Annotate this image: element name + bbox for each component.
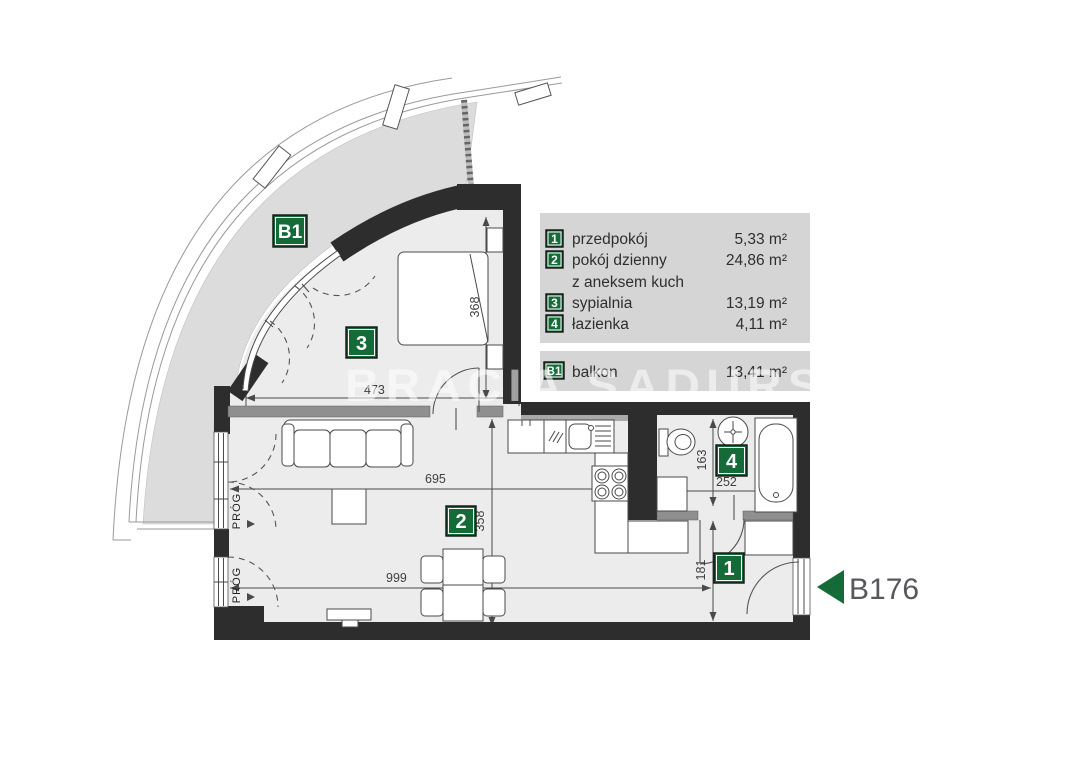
badge-bathroom: 4 bbox=[716, 445, 747, 476]
dim-living-width-lower: 999 bbox=[386, 571, 407, 585]
svg-text:B1: B1 bbox=[278, 222, 303, 243]
badge-hall: 1 bbox=[714, 553, 744, 583]
svg-text:3: 3 bbox=[551, 296, 558, 310]
svg-text:2: 2 bbox=[455, 511, 466, 533]
wall-left-bottom-corner bbox=[214, 606, 264, 640]
dim-bathroom-depth: 163 bbox=[695, 450, 709, 471]
floorplan-drawing: 473 368 695 358 999 163 252 181 PRÓG PRÓ… bbox=[0, 0, 1070, 763]
svg-text:sypialnia: sypialnia bbox=[572, 295, 633, 312]
railing-post bbox=[515, 83, 551, 105]
dining-chair bbox=[483, 556, 505, 583]
svg-text:5,33 m²: 5,33 m² bbox=[734, 231, 787, 248]
nightstand bbox=[487, 228, 503, 252]
shelf-base bbox=[342, 620, 358, 627]
sofa-cushion bbox=[366, 430, 401, 467]
dim-bathroom-width: 252 bbox=[716, 475, 737, 489]
watermark: BRACIA SADURSCY bbox=[345, 360, 905, 411]
partition-bath-hall-left bbox=[657, 511, 698, 520]
washing-machine bbox=[657, 477, 687, 511]
svg-text:4: 4 bbox=[551, 317, 558, 331]
washbasin-drain bbox=[731, 430, 735, 434]
wall-left-top bbox=[214, 386, 230, 434]
unit-label: B176 bbox=[849, 573, 919, 606]
dining-chair bbox=[483, 589, 505, 616]
svg-text:24,86 m²: 24,86 m² bbox=[726, 252, 787, 269]
threshold-label: PRÓG bbox=[230, 567, 243, 603]
dim-hall-depth: 181 bbox=[694, 560, 708, 581]
wall-kitchen-bath bbox=[628, 415, 657, 520]
hall-cabinet bbox=[745, 521, 793, 555]
svg-text:łazienka: łazienka bbox=[572, 316, 629, 333]
sofa-arm bbox=[401, 424, 413, 466]
dim-living-width: 695 bbox=[425, 472, 446, 486]
svg-text:13,19 m²: 13,19 m² bbox=[726, 295, 787, 312]
badge-balcony: B1 bbox=[273, 215, 307, 247]
entry-door bbox=[793, 558, 810, 615]
wall-left-pier bbox=[214, 529, 229, 558]
fridge bbox=[508, 420, 544, 453]
sink-bowl bbox=[569, 424, 591, 449]
dining-chair bbox=[421, 589, 443, 616]
bathtub-inner bbox=[759, 424, 793, 502]
threshold-label: PRÓG bbox=[230, 493, 243, 529]
unit-arrow-icon bbox=[817, 570, 844, 604]
svg-text:4,11 m²: 4,11 m² bbox=[736, 316, 787, 333]
wall-bottom bbox=[214, 622, 810, 640]
badge-living: 2 bbox=[446, 506, 476, 536]
legend-row: 2 pokój dzienny 24,86 m² bbox=[546, 251, 787, 269]
sofa-arm bbox=[282, 424, 294, 466]
kitchen-counter-lower bbox=[628, 521, 688, 553]
dishwasher bbox=[544, 420, 566, 453]
legend-row: z aneksem kuch bbox=[572, 274, 684, 291]
svg-text:3: 3 bbox=[356, 333, 367, 355]
svg-text:4: 4 bbox=[726, 451, 738, 473]
coffee-table bbox=[332, 489, 366, 524]
svg-text:pokój dzienny: pokój dzienny bbox=[572, 252, 667, 269]
svg-text:1: 1 bbox=[551, 232, 558, 246]
svg-text:przedpokój: przedpokój bbox=[572, 231, 648, 248]
balcony-door-upper bbox=[214, 432, 228, 529]
shelf bbox=[327, 609, 371, 620]
svg-text:1: 1 bbox=[723, 558, 734, 580]
dining-chair bbox=[421, 556, 443, 583]
unit-label-group: B176 bbox=[817, 570, 919, 606]
svg-text:2: 2 bbox=[551, 253, 558, 267]
svg-text:z aneksem kuch: z aneksem kuch bbox=[572, 274, 684, 291]
sink-faucet bbox=[589, 426, 594, 431]
dim-bedroom-depth: 368 bbox=[468, 297, 482, 318]
sofa-cushion bbox=[294, 430, 330, 467]
sofa-cushion bbox=[330, 430, 366, 467]
floorplan-page: 473 368 695 358 999 163 252 181 PRÓG PRÓ… bbox=[0, 0, 1070, 763]
badge-bedroom: 3 bbox=[346, 327, 377, 358]
